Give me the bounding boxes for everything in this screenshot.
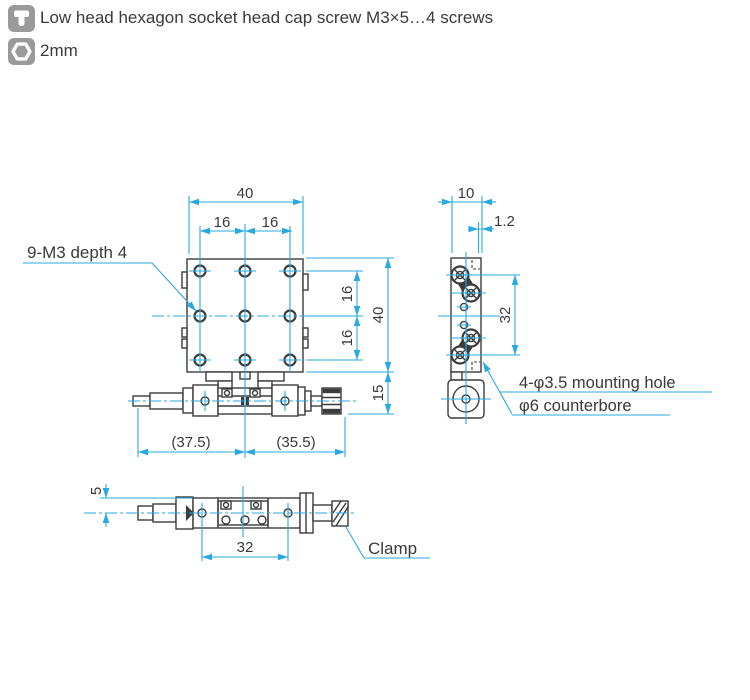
dim-lip-12: 1.2 [494,213,515,230]
header: Low head hexagon socket head cap screw M… [8,5,493,65]
mounting-hole-callout: 4-φ3.5 mounting hole φ6 counterbore [483,362,712,415]
dim-pitch-16-left: 16 [214,214,231,231]
hex-wrench-icon [8,38,35,65]
hole-callout: 9-M3 depth 4 [23,243,196,311]
dim-pitch-32-bottom: 32 [237,539,254,556]
mounting-hole-text-2: φ6 counterbore [519,397,632,415]
dim-width-40: 40 [237,185,254,202]
clamp-text: Clamp [368,539,417,558]
dim-height-5: 5 [88,487,105,495]
wrench-size-text: 2mm [40,41,78,60]
bottom-view: 5 32 Clamp [84,484,430,561]
dim-pitch-16-lower: 16 [339,330,356,347]
clamp-callout: Clamp [346,527,430,558]
dim-drop-15: 15 [370,385,387,402]
dim-depth-10: 10 [458,185,475,202]
dim-height-40: 40 [370,307,387,324]
screw-icon [8,5,35,32]
dim-pitch-16-right: 16 [262,214,279,231]
dim-pitch-32-side: 32 [497,307,514,324]
screw-note-text: Low head hexagon socket head cap screw M… [40,8,493,27]
front-view: 40 16 16 16 16 40 15 (37.5) (35.5) 9-M3 … [23,185,394,458]
dim-375: (37.5) [171,434,210,451]
side-view: 10 1.2 32 4-φ3.5 mounting hole φ6 counte… [438,185,712,424]
technical-drawing: Low head hexagon socket head cap screw M… [0,0,750,700]
dim-pitch-16-upper: 16 [339,286,356,303]
dim-355: (35.5) [276,434,315,451]
mounting-hole-text-1: 4-φ3.5 mounting hole [519,374,676,392]
hole-callout-text: 9-M3 depth 4 [27,243,127,262]
